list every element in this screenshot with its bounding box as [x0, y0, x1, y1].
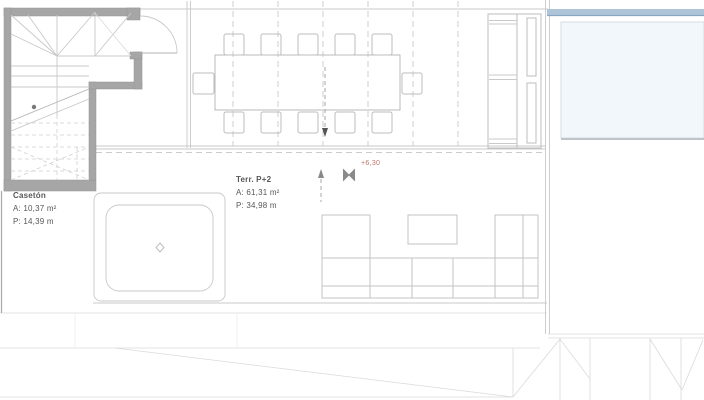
dining-chair — [193, 73, 214, 94]
dining-chair — [372, 112, 392, 133]
floor-plan-canvas: Casetón A: 10,37 m² P: 14,39 m Terr. P+2… — [0, 0, 704, 400]
level-marker-icon — [343, 169, 355, 181]
dining-chair — [372, 34, 392, 55]
terrace-right-edge — [546, 0, 550, 334]
pool-water — [561, 22, 704, 138]
dining-chair — [224, 34, 244, 55]
jacuzzi-drain-icon — [156, 243, 164, 252]
lower-roof-facets — [513, 334, 704, 400]
dining-set — [193, 34, 422, 133]
sofa-sectional — [322, 215, 538, 298]
caseton-perimeter: P: 14,39 m — [13, 215, 57, 228]
jacuzzi — [94, 193, 225, 301]
pool — [547, 9, 704, 139]
terrace-name: Terr. P+2 — [236, 173, 280, 186]
caseton-name: Casetón — [13, 189, 57, 202]
coffee-table — [408, 215, 457, 244]
dining-chair — [402, 73, 422, 94]
staircase — [11, 12, 131, 180]
dining-chair — [335, 34, 355, 55]
terrace-perimeter: P: 34,98 m — [236, 199, 280, 212]
pergola-beams — [96, 1, 546, 153]
dining-chair — [298, 34, 318, 55]
caseton-walls — [4, 8, 142, 191]
room-label-caseton: Casetón A: 10,37 m² P: 14,39 m — [13, 189, 57, 228]
dining-table — [215, 55, 400, 110]
level-annotation: +6,30 — [361, 160, 380, 167]
entry-door — [140, 16, 177, 53]
dining-chair — [224, 112, 244, 133]
outdoor-kitchen-counter — [488, 14, 541, 148]
slope-arrow-up-icon — [318, 169, 324, 202]
terrain-lines — [0, 303, 547, 397]
pool-edge-band — [547, 9, 704, 16]
terrace-area: A: 61,31 m² — [236, 186, 280, 199]
caseton-area: A: 10,37 m² — [13, 202, 57, 215]
stair-direction-dot-icon — [32, 105, 36, 109]
plan-linework — [0, 0, 704, 400]
dining-chair — [298, 112, 318, 133]
room-label-terrace: Terr. P+2 A: 61,31 m² P: 34,98 m — [236, 173, 280, 212]
dining-chair — [335, 112, 355, 133]
